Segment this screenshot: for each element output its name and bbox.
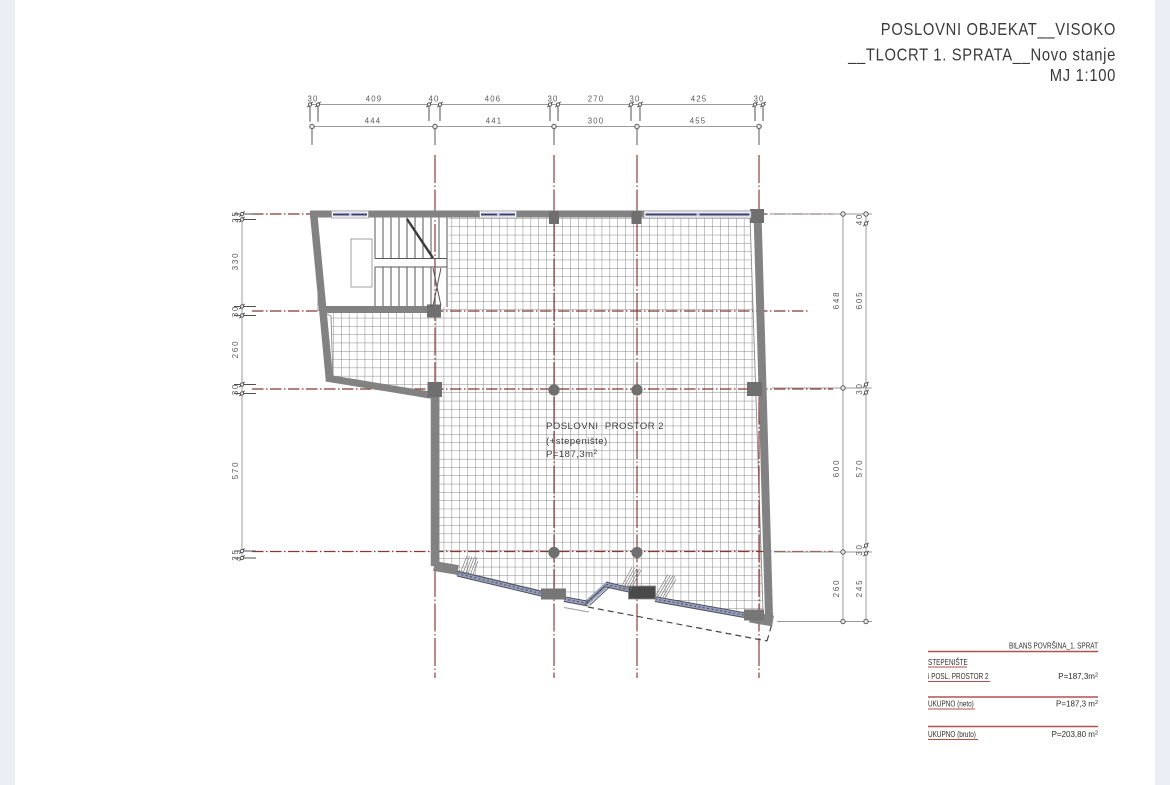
svg-text:455: 455 [690, 117, 707, 126]
svg-text:260: 260 [231, 340, 240, 359]
svg-text:BILANS POVRŠINA_1. SPRAT: BILANS POVRŠINA_1. SPRAT [1009, 641, 1098, 651]
svg-text:425: 425 [691, 95, 708, 104]
svg-text:__TLOCRT 1. SPRATA__Novo stanj: __TLOCRT 1. SPRATA__Novo stanje [847, 45, 1116, 64]
svg-text:30: 30 [547, 95, 558, 104]
svg-text:30: 30 [855, 382, 864, 395]
svg-text:30: 30 [231, 305, 240, 318]
svg-text:STEPENIŠTE: STEPENIŠTE [928, 657, 968, 667]
svg-text:40: 40 [855, 213, 864, 226]
svg-text:i POSL. PROSTOR 2: i POSL. PROSTOR 2 [928, 671, 989, 681]
svg-text:40: 40 [428, 95, 439, 104]
svg-text:P=203,80 m2: P=203,80 m2 [1052, 730, 1098, 739]
svg-text:30: 30 [855, 543, 864, 556]
svg-text:330: 330 [231, 252, 240, 271]
svg-text:POSLOVNI OBJEKAT__VISOKO: POSLOVNI OBJEKAT__VISOKO [881, 20, 1116, 39]
svg-text:P=187,3 m2: P=187,3 m2 [1056, 700, 1098, 709]
svg-text:30: 30 [753, 95, 764, 104]
svg-text:600: 600 [832, 459, 841, 478]
svg-text:30: 30 [307, 95, 318, 104]
svg-text:441: 441 [486, 117, 503, 126]
svg-text:648: 648 [832, 291, 841, 310]
svg-text:406: 406 [485, 95, 502, 104]
svg-text:30: 30 [231, 383, 240, 396]
svg-text:(+stepenište): (+stepenište) [546, 436, 608, 447]
svg-text:605: 605 [855, 291, 864, 310]
svg-text:245: 245 [855, 579, 864, 598]
svg-text:570: 570 [231, 461, 240, 480]
svg-text:MJ 1:100: MJ 1:100 [1050, 66, 1116, 85]
svg-text:25: 25 [231, 548, 240, 561]
svg-text:409: 409 [366, 95, 383, 104]
svg-text:30: 30 [629, 95, 640, 104]
svg-text:25: 25 [231, 210, 240, 223]
svg-text:P=187,3m2: P=187,3m2 [1058, 672, 1098, 681]
svg-text:260: 260 [832, 579, 841, 598]
svg-text:UKUPNO (neto): UKUPNO (neto) [928, 699, 974, 709]
svg-text:UKUPNO (bruto): UKUPNO (bruto) [928, 729, 976, 739]
svg-text:P=187,3m2: P=187,3m2 [546, 449, 598, 460]
svg-text:POSLOVNI PROSTOR 2: POSLOVNI PROSTOR 2 [546, 421, 664, 432]
svg-text:300: 300 [588, 117, 605, 126]
svg-text:570: 570 [855, 459, 864, 478]
svg-text:444: 444 [365, 117, 382, 126]
svg-text:270: 270 [588, 95, 605, 104]
